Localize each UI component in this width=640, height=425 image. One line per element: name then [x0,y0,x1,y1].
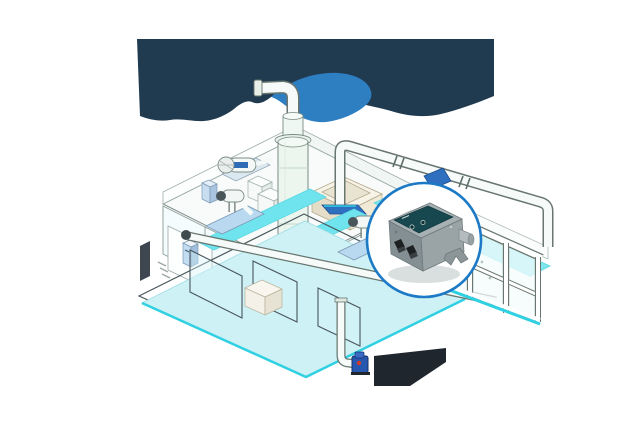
lid-screw [449,225,453,229]
callout [367,183,481,297]
floor-shadow [374,348,446,386]
panel-indicator-1 [410,225,414,229]
illustration-canvas [0,0,640,425]
pipe-end-cap [181,230,191,240]
valve-indicator [357,361,361,365]
wall-shadow [140,241,150,281]
blue-cabinet [202,180,217,203]
drain-valve-pump [351,352,370,375]
panel-indicator-2 [421,220,425,224]
front-screw [395,231,398,234]
header-splash [137,39,494,122]
